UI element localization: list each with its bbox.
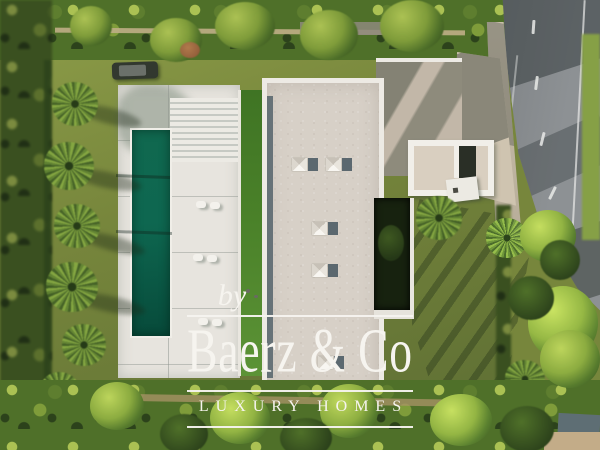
street-centerline-dash xyxy=(548,186,557,200)
sun-lounger xyxy=(212,319,222,326)
roof-skylight xyxy=(318,356,344,369)
palm-tree xyxy=(52,82,98,126)
equipment-dot xyxy=(246,289,250,293)
roof-skylight xyxy=(312,222,338,235)
tree-canopy xyxy=(90,382,144,430)
roadside-verge xyxy=(582,34,600,240)
hedge-line xyxy=(44,60,51,390)
tree-canopy xyxy=(160,414,208,450)
tree-canopy xyxy=(500,406,554,450)
street-centerline-dash xyxy=(534,76,539,90)
tree-canopy xyxy=(280,418,332,450)
sun-lounger xyxy=(198,318,208,325)
pavilion-door xyxy=(453,188,459,194)
palm-tree xyxy=(44,142,94,190)
roof-skylight xyxy=(292,158,318,171)
sun-lounger xyxy=(207,255,217,262)
courtyard-void xyxy=(459,146,476,178)
tree-canopy xyxy=(508,276,554,320)
palm-tree xyxy=(46,262,98,312)
watermark-divider xyxy=(187,315,413,317)
tree-canopy xyxy=(380,0,444,52)
aerial-photo-stage: by Baerz & Co LUXURY HOMES xyxy=(0,0,600,450)
courtyard-tree xyxy=(378,225,404,261)
palm-tree xyxy=(54,204,100,248)
tree-canopy xyxy=(300,10,358,60)
tree-canopy xyxy=(210,392,270,444)
palm-tree xyxy=(416,196,462,240)
sun-lounger xyxy=(210,202,220,209)
tree-canopy xyxy=(70,6,112,46)
equipment-dot xyxy=(254,295,258,298)
main-roof xyxy=(262,78,384,400)
sun-lounger xyxy=(193,254,203,261)
palm-tree xyxy=(62,324,106,366)
pergola-slats xyxy=(170,98,238,162)
watermark-divider xyxy=(187,390,413,392)
watermark-divider xyxy=(187,426,413,428)
sun-lounger xyxy=(196,201,206,208)
tree-canopy xyxy=(430,394,492,446)
van-roof xyxy=(119,65,146,77)
tree-canopy xyxy=(540,240,580,280)
roof-skylight xyxy=(326,158,352,171)
clerestory-glass xyxy=(267,96,273,378)
tree-canopy xyxy=(180,42,200,58)
roof-skylight xyxy=(312,264,338,277)
tree-canopy xyxy=(215,2,275,50)
tree-canopy xyxy=(540,330,600,388)
